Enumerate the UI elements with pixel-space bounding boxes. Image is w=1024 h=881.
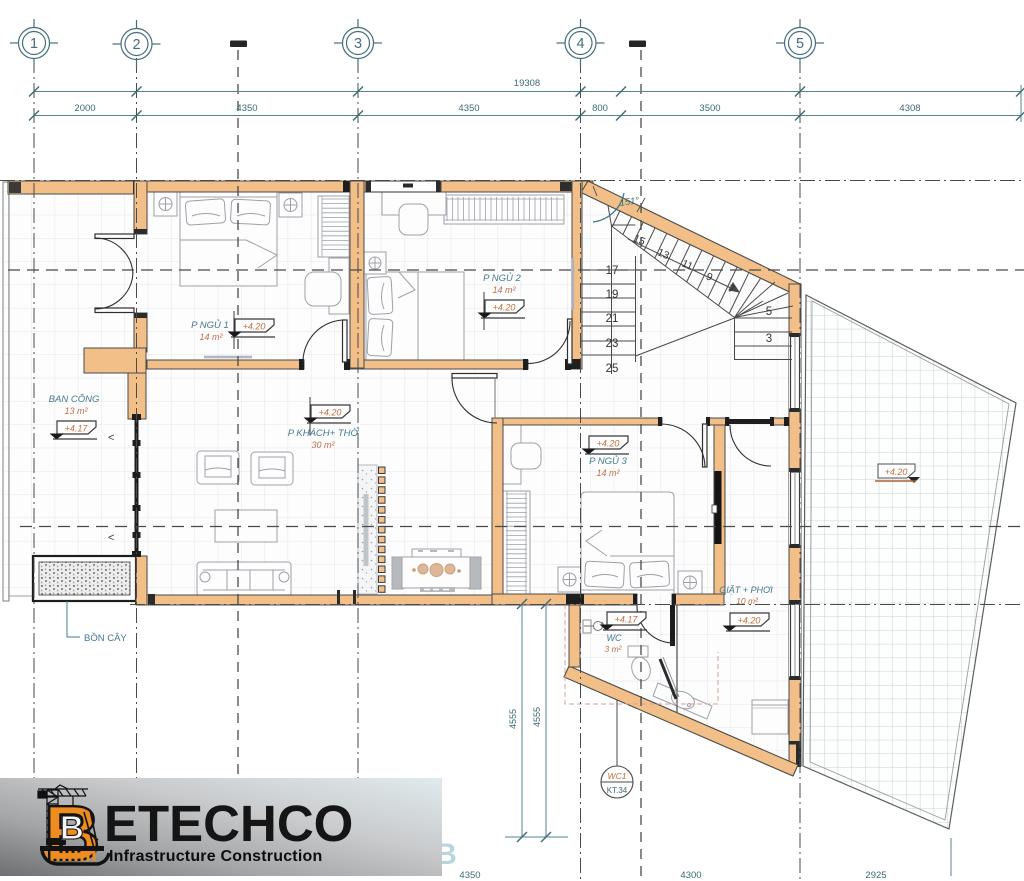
- svg-text:17: 17: [606, 265, 619, 277]
- svg-text:14 m²: 14 m²: [492, 285, 516, 295]
- svg-text:10 m²: 10 m²: [736, 596, 759, 606]
- svg-text:BỒN CÂY: BỒN CÂY: [84, 632, 127, 644]
- svg-text:ETECHCO: ETECHCO: [104, 795, 353, 852]
- svg-text:21: 21: [606, 313, 619, 325]
- svg-text:BAN CÔNG: BAN CÔNG: [49, 394, 100, 405]
- svg-text:P KHÁCH+ THỜ: P KHÁCH+ THỜ: [288, 428, 360, 439]
- svg-text:5: 5: [796, 36, 804, 52]
- svg-text:3: 3: [766, 333, 772, 345]
- svg-text:P NGỦ 1: P NGỦ 1: [191, 319, 229, 331]
- svg-text:GIẶT + PHƠI: GIẶT + PHƠI: [719, 585, 773, 595]
- svg-text:5: 5: [766, 306, 772, 318]
- svg-text:Infrastructure Construction: Infrastructure Construction: [109, 848, 322, 865]
- svg-text:+4.20: +4.20: [243, 322, 266, 332]
- svg-text:P NGỦ 2: P NGỦ 2: [483, 272, 521, 284]
- svg-text:P NGỦ 3: P NGỦ 3: [589, 455, 627, 467]
- svg-text:4350: 4350: [458, 103, 479, 114]
- svg-text:2925: 2925: [865, 870, 886, 881]
- svg-text:+4.17: +4.17: [615, 615, 639, 625]
- svg-text:+4.20: +4.20: [885, 467, 908, 477]
- svg-text:19308: 19308: [514, 78, 540, 89]
- svg-text:+4.20: +4.20: [738, 616, 761, 626]
- svg-text:+4.20: +4.20: [493, 303, 516, 313]
- svg-text:800: 800: [592, 103, 608, 114]
- svg-text:4308: 4308: [899, 103, 920, 114]
- svg-text:WC: WC: [607, 633, 622, 643]
- svg-text:+4.20: +4.20: [597, 439, 620, 449]
- svg-text:23: 23: [606, 338, 619, 350]
- svg-text:4350: 4350: [459, 870, 480, 881]
- svg-text:25: 25: [606, 363, 619, 375]
- svg-text:13 m²: 13 m²: [64, 406, 88, 416]
- svg-text:4300: 4300: [680, 870, 701, 881]
- svg-text:30 m²: 30 m²: [311, 440, 335, 450]
- svg-text:WC1: WC1: [608, 771, 627, 781]
- svg-text:<: <: [108, 532, 114, 544]
- svg-text:14 m²: 14 m²: [199, 332, 223, 342]
- svg-text:1: 1: [30, 36, 38, 52]
- svg-text:+4.17: +4.17: [65, 424, 89, 434]
- svg-text:3500: 3500: [699, 103, 720, 114]
- svg-text:4555: 4555: [508, 709, 518, 729]
- svg-text:2000: 2000: [74, 103, 95, 114]
- svg-text:4350: 4350: [236, 103, 257, 114]
- svg-text:KT.34: KT.34: [607, 786, 628, 795]
- svg-text:4: 4: [576, 36, 584, 52]
- svg-text:3: 3: [354, 36, 362, 52]
- svg-text:14 m²: 14 m²: [596, 468, 620, 478]
- svg-text:2: 2: [132, 37, 140, 53]
- svg-text:+4.20: +4.20: [319, 408, 342, 418]
- svg-text:19: 19: [606, 289, 619, 301]
- svg-text:4555: 4555: [532, 707, 542, 727]
- svg-text:3 m²: 3 m²: [605, 644, 623, 654]
- svg-text:<: <: [108, 432, 114, 444]
